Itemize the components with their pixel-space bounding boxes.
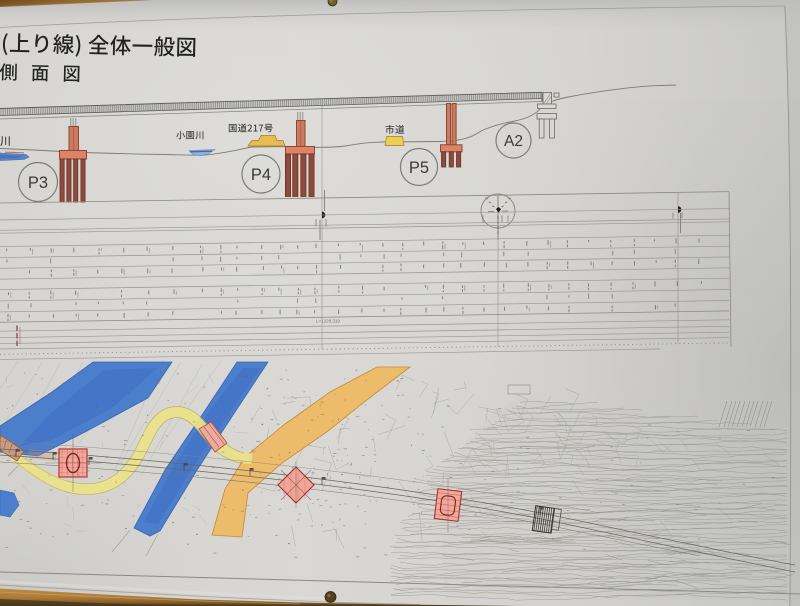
svg-text:P4: P4	[251, 166, 271, 184]
svg-text:L=1228.319: L=1228.319	[316, 319, 340, 324]
svg-text:A2: A2	[504, 133, 523, 150]
svg-text:P3: P3	[28, 174, 48, 192]
svg-text:P5: P5	[409, 159, 429, 177]
